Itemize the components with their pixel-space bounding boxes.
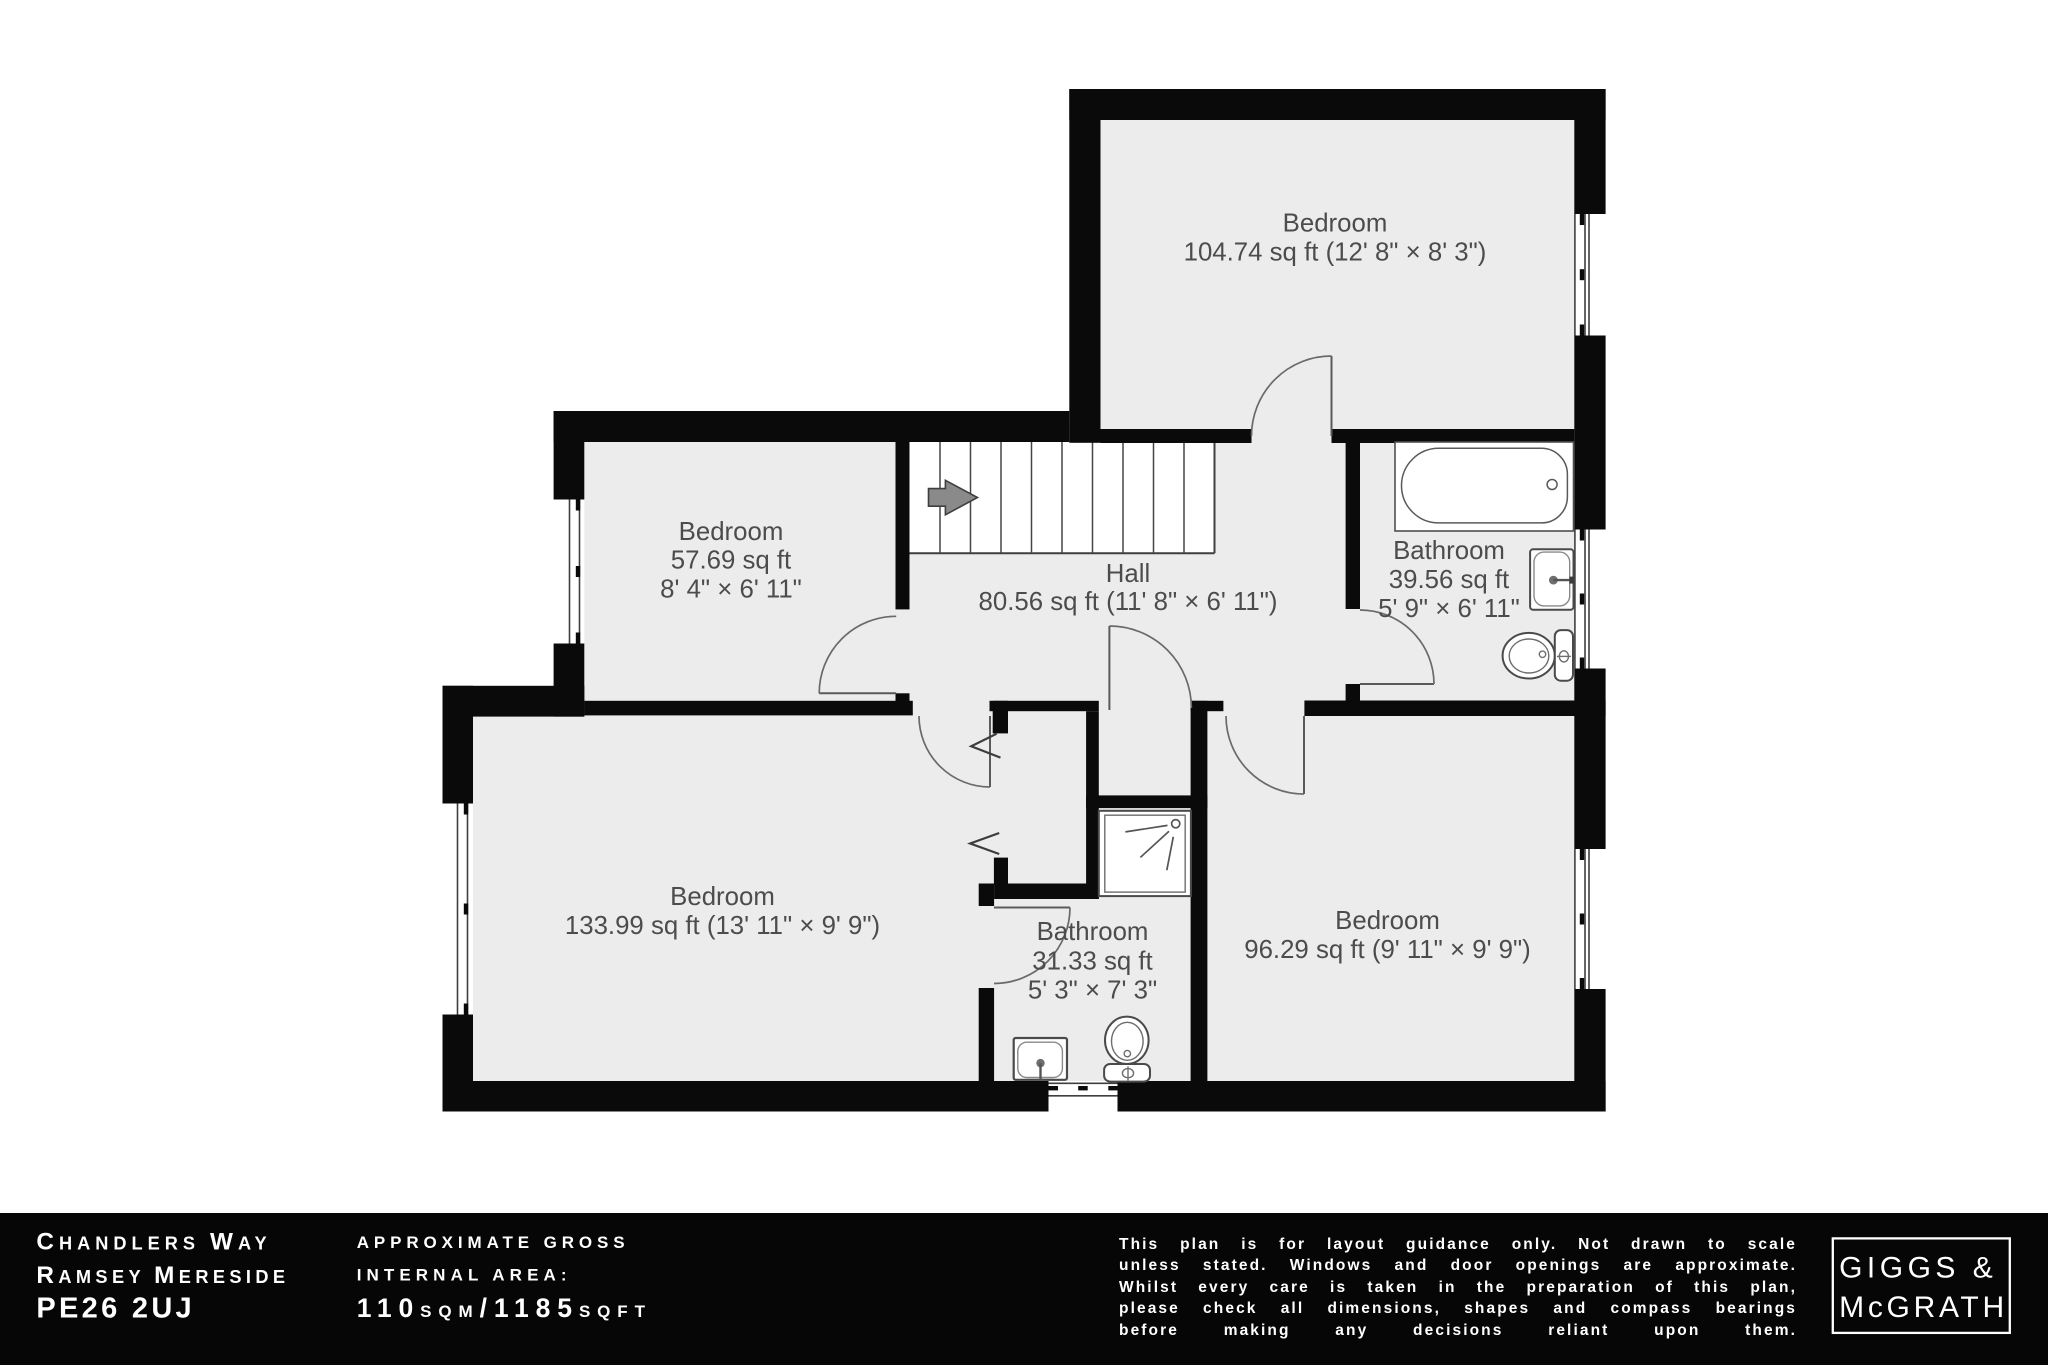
svg-text:RAMSEY MERESIDE: RAMSEY MERESIDE [36,1262,289,1289]
svg-text:PE26 2UJ: PE26 2UJ [36,1293,195,1325]
svg-text:Bathroom39.56 sq ft5' 9" × 6': Bathroom39.56 sq ft5' 9" × 6' 11" [1378,537,1520,623]
svg-text:GIGGS &: GIGGS & [1839,1252,1997,1285]
svg-text:CHANDLERS WAY: CHANDLERS WAY [36,1228,271,1255]
svg-text:APPROXIMATE GROSS: APPROXIMATE GROSS [357,1233,630,1252]
svg-text:Bedroom57.69 sq ft8' 4" × 6' 1: Bedroom57.69 sq ft8' 4" × 6' 11" [660,518,802,603]
svg-text:INTERNAL AREA:: INTERNAL AREA: [357,1265,572,1284]
svg-text:Bathroom31.33 sq ft5' 3" × 7': Bathroom31.33 sq ft5' 3" × 7' 3" [1028,918,1157,1005]
svg-text:McGRATH: McGRATH [1839,1291,2008,1324]
